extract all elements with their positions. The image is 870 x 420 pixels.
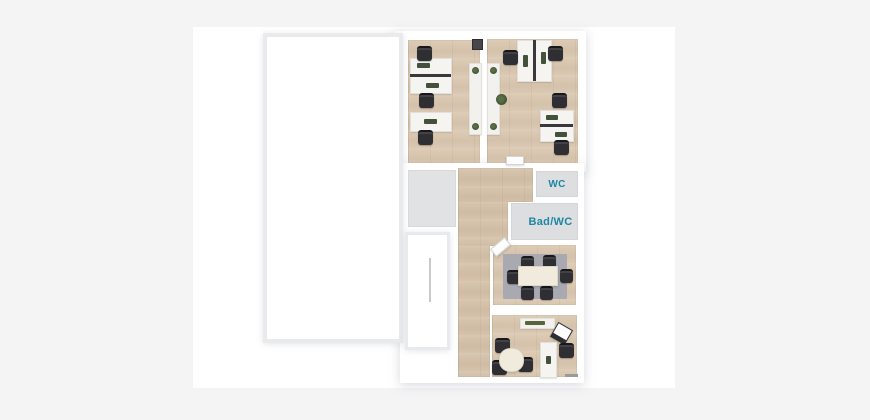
double-desk [517,40,552,82]
double-desk [410,58,452,94]
room-large-unfurnished [263,33,403,343]
desk-pad [546,115,558,120]
plant-icon [472,123,479,130]
room-office-bottom-floor [492,315,577,377]
desk-divider [540,124,573,127]
desk-pad [417,63,430,68]
room-storage-floor [408,170,456,227]
plant-icon [490,67,497,74]
sideboard [469,63,482,135]
office-chair [418,130,433,145]
sideboard [520,318,555,329]
room-bad-wc: Bad/WC [511,203,578,240]
plant-icon [525,321,545,325]
office-chair [548,46,563,61]
desk-pad [523,55,528,67]
double-desk [540,110,574,142]
floorplan-canvas: WC Bad/WC [193,27,675,388]
desk-pad [555,132,567,137]
meeting-chair [521,286,534,300]
office-chair [559,343,574,358]
single-desk [540,342,557,378]
conference-table [518,266,558,286]
bad-wc-label: Bad/WC [529,216,573,228]
hallway-floor [458,168,533,202]
desk-divider [410,74,451,77]
single-desk [410,112,452,132]
door-threshold [565,374,578,377]
equipment-box [472,39,483,50]
office-chair [417,46,432,61]
plant-icon [496,94,507,105]
office-chair [554,140,569,155]
office-chair [419,93,434,108]
door-leaf [506,156,524,165]
desk-pad [426,83,439,88]
desk-pad [541,52,546,64]
meeting-chair [560,269,573,283]
desk-pad [546,356,551,364]
desk-divider [533,40,536,81]
room-wc: WC [536,171,578,197]
plant-icon [490,123,497,130]
desk-pad [424,119,437,124]
wc-label: WC [548,179,565,190]
door-line [429,258,431,302]
round-table [499,348,524,372]
plant-icon [472,67,479,74]
meeting-chair [540,286,553,300]
hallway-floor [458,245,490,377]
room-entrance [405,232,450,350]
room-meeting-floor [493,245,576,305]
office-chair [503,50,518,65]
office-chair [552,93,567,108]
